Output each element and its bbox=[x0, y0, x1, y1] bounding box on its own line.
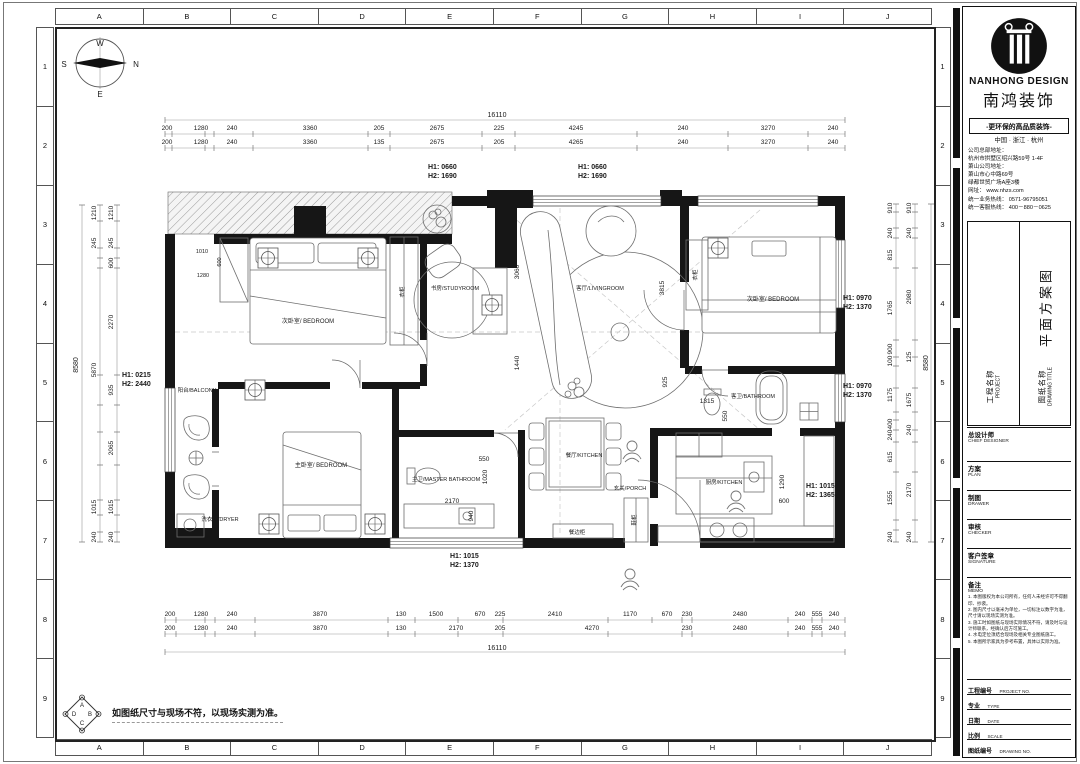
room-label: 阳台/BALCONY bbox=[178, 386, 217, 394]
dim-label: 16110 bbox=[488, 112, 507, 119]
note-text: 如图纸尺寸与现场不符，以现场实测为准。 bbox=[112, 706, 283, 723]
dim-label: 555 bbox=[812, 625, 823, 632]
dim-label: 2170 bbox=[445, 498, 460, 505]
window-height-label: H2: 1370 bbox=[450, 562, 479, 569]
dim-label: 240 bbox=[91, 531, 98, 542]
person-figure bbox=[623, 441, 641, 462]
project-drawing-box: 工程名称 PROJECT 平面方案图 图纸名称 DRAWING TITLE bbox=[967, 221, 1071, 426]
dim-label: 550 bbox=[479, 456, 490, 463]
abcd-diamond-logo: A B C D bbox=[62, 694, 102, 734]
dim-label: 2065 bbox=[108, 440, 115, 455]
dim-label: 2675 bbox=[430, 139, 445, 146]
dim-label: 240 bbox=[887, 429, 894, 440]
dim-label: 100 bbox=[887, 355, 894, 366]
column-logo-icon bbox=[988, 14, 1050, 76]
drawing-title-label-en: DRAWING TITLE bbox=[1047, 367, 1053, 406]
room-label: 客卫/BATHROOM bbox=[731, 392, 775, 400]
dim-label: 910 bbox=[906, 202, 913, 213]
chief-label-en: CHIEF DESIGNER bbox=[968, 439, 1070, 444]
memo-item: 2. 图内尺寸以毫米为单位，一切标注以数字为准，尺寸请以现场实测为准。 bbox=[968, 607, 1070, 620]
dim-label: 200 bbox=[162, 125, 173, 132]
dim-label: 225 bbox=[495, 611, 506, 618]
dim-label: 240 bbox=[887, 227, 894, 238]
dim-label: 2170 bbox=[906, 482, 913, 497]
dim-label: 200 bbox=[162, 139, 173, 146]
dim-label: 670 bbox=[662, 611, 673, 618]
window-height-label: H1: 1015 bbox=[806, 483, 835, 490]
address-line: 绿都世贸广场A座3楼 bbox=[968, 179, 1070, 187]
company-logo: NANHONG DESIGN 南鸿装饰 bbox=[967, 10, 1071, 116]
dim-label: 240 bbox=[829, 625, 840, 632]
dim-label: 555 bbox=[812, 611, 823, 618]
dim-label: 240 bbox=[906, 227, 913, 238]
cabinet-label: 鞋柜 bbox=[630, 514, 638, 526]
dim-label: 1500 bbox=[429, 611, 444, 618]
dim-label: 2270 bbox=[108, 314, 115, 329]
window-height-label: H2: 1370 bbox=[843, 392, 872, 399]
room-label: 厨房/KITCHEN bbox=[706, 478, 743, 486]
dim-label: 940 bbox=[468, 510, 475, 521]
room-label: 次卧室/ BEDROOM bbox=[282, 317, 334, 325]
dim-label: 1280 bbox=[194, 625, 209, 632]
dim-label: 130 bbox=[396, 611, 407, 618]
dim-label: 240 bbox=[828, 139, 839, 146]
dim-label: 4270 bbox=[585, 625, 600, 632]
brand-region: 中国 · 浙江 · 杭州 bbox=[967, 135, 1071, 145]
dim-label: 240 bbox=[227, 611, 238, 618]
cabinet-label: 餐边柜 bbox=[569, 528, 586, 536]
dim-label: 240 bbox=[828, 125, 839, 132]
room-label: 餐厅/KITCHEN bbox=[566, 451, 603, 459]
dim-label: 240 bbox=[678, 125, 689, 132]
dim-label: 240 bbox=[795, 625, 806, 632]
titleblock-footer-row: 工程编号 PROJECT NO. bbox=[967, 679, 1071, 694]
project-label: 工程名称 bbox=[985, 369, 996, 403]
cabinet-label: 衣柜 bbox=[398, 286, 406, 298]
dim-label: 600 bbox=[108, 257, 115, 268]
svg-text:B: B bbox=[88, 712, 92, 718]
titleblock-rows: 方案 PLAN 制图 DRAWER 审核 CHECKER 客户签章 SIGNAT… bbox=[967, 461, 1071, 577]
dim-label: 240 bbox=[887, 531, 894, 542]
dim-label: 935 bbox=[108, 384, 115, 395]
dim-label: 225 bbox=[494, 125, 505, 132]
dim-label: 240 bbox=[795, 611, 806, 618]
dim-label: 240 bbox=[829, 611, 840, 618]
dim-label: 130 bbox=[396, 625, 407, 632]
window-height-label: H1: 0970 bbox=[843, 383, 872, 390]
dim-label: 3270 bbox=[761, 139, 776, 146]
room-label: 玄关/PORCH bbox=[614, 484, 646, 492]
dim-label: 5870 bbox=[91, 362, 98, 377]
memo-item: 1. 本图版权为本公司所有，任何人未经许可不得翻印、抄袭。 bbox=[968, 594, 1070, 607]
dim-label: 135 bbox=[374, 139, 385, 146]
window-height-label: H2: 1370 bbox=[843, 304, 872, 311]
dim-label: N bbox=[133, 60, 139, 69]
dim-label: 2410 bbox=[548, 611, 563, 618]
dim-label: 205 bbox=[495, 625, 506, 632]
dim-label: 550 bbox=[722, 410, 729, 421]
dim-label: 2170 bbox=[449, 625, 464, 632]
dim-label: 1010 bbox=[196, 249, 208, 255]
dim-label: 230 bbox=[682, 625, 693, 632]
dim-label: 240 bbox=[678, 139, 689, 146]
brand-name-en: NANHONG DESIGN bbox=[969, 76, 1069, 87]
window-height-label: H1: 1015 bbox=[450, 553, 479, 560]
armchair bbox=[586, 206, 636, 256]
brand-slogan: -更环保的高品质装饰- bbox=[969, 118, 1069, 134]
dim-label: 1015 bbox=[108, 499, 115, 514]
address-line: 萧山市心中路69号 bbox=[968, 171, 1070, 179]
sink bbox=[744, 462, 764, 492]
dim-label: 3870 bbox=[313, 625, 328, 632]
dim-label: 16110 bbox=[488, 645, 507, 652]
desk-chair bbox=[422, 241, 465, 282]
dim-label: 3870 bbox=[313, 611, 328, 618]
dim-label: 1440 bbox=[514, 355, 521, 370]
project-label-en: PROJECT bbox=[996, 369, 1002, 403]
dim-label: 245 bbox=[91, 237, 98, 248]
dim-label: 400 bbox=[887, 418, 894, 429]
dim-label: 3360 bbox=[303, 125, 318, 132]
dim-label: 925 bbox=[662, 376, 669, 387]
titleblock-footer-row: 比例 SCALE bbox=[967, 724, 1071, 739]
drawing-title: 平面方案图 bbox=[1035, 267, 1054, 347]
address-line: 统一客服热线： 400－880－0625 bbox=[968, 204, 1070, 212]
titleblock-footer-rows: 工程编号 PROJECT NO. 专业 TYPE 日期 DATE 比例 SCAL… bbox=[967, 679, 1071, 754]
cabinet-label: 衣柜 bbox=[691, 269, 699, 281]
titleblock-footer-row: 图纸编号 DRAWING NO. bbox=[967, 739, 1071, 754]
dim-label: 240 bbox=[906, 424, 913, 435]
dim-label: 230 bbox=[682, 611, 693, 618]
memo-item: 3. 施工时如图纸与现场实际情况不符，请及时与设计师联系，经确认后方可施工。 bbox=[968, 620, 1070, 633]
svg-text:D: D bbox=[72, 712, 77, 718]
company-address: 公司总部地址：杭州市拱墅区绍兴路59号 1-4F萧山公司地址：萧山市心中路69号… bbox=[967, 145, 1071, 220]
dim-label: 1675 bbox=[906, 392, 913, 407]
project-name-cell: 工程名称 PROJECT bbox=[968, 222, 1020, 425]
dim-label: 2480 bbox=[733, 625, 748, 632]
dim-label: 600 bbox=[779, 498, 790, 505]
dim-label: 1555 bbox=[887, 490, 894, 505]
room-label: 主卧室/ BEDROOM bbox=[295, 461, 347, 469]
titleblock-row: 审核 CHECKER bbox=[967, 519, 1071, 548]
dim-label: 910 bbox=[887, 202, 894, 213]
address-line: 统一业务热线： 0571-96795051 bbox=[968, 196, 1070, 204]
dim-label: 3815 bbox=[659, 280, 666, 295]
dim-label: 205 bbox=[374, 125, 385, 132]
dim-label: 3270 bbox=[761, 125, 776, 132]
dim-label: 2675 bbox=[430, 125, 445, 132]
titleblock-row: 客户签章 SIGNATURE bbox=[967, 548, 1071, 577]
dim-label: 900 bbox=[887, 343, 894, 354]
dim-label: 1210 bbox=[108, 205, 115, 220]
dim-label: 200 bbox=[165, 611, 176, 618]
dim-label: 1175 bbox=[887, 388, 894, 402]
bed bbox=[283, 432, 361, 538]
dim-label: 1020 bbox=[482, 469, 489, 484]
dim-label: 1290 bbox=[779, 474, 786, 489]
drawing-title-cell: 平面方案图 图纸名称 DRAWING TITLE bbox=[1020, 222, 1071, 425]
svg-text:A: A bbox=[80, 703, 84, 709]
memo-item: 5. 本图所示家具为参考布置，具体以实际为准。 bbox=[968, 639, 1070, 645]
dim-label: S bbox=[61, 60, 66, 69]
plan-labels: WSNE161102001280240336020526752254245240… bbox=[61, 39, 930, 652]
dim-label: 125 bbox=[906, 351, 913, 362]
sofa bbox=[517, 208, 596, 402]
room-label: 书房/STUDYROOM bbox=[431, 284, 480, 292]
titleblock-row: 制图 DRAWER bbox=[967, 490, 1071, 519]
vanity bbox=[404, 504, 494, 528]
address-line: 萧山公司地址： bbox=[968, 163, 1070, 171]
dim-label: 240 bbox=[227, 139, 238, 146]
memo-item: 4. 水电定位须结合现场及相关专业图纸施工。 bbox=[968, 632, 1070, 638]
dim-label: 240 bbox=[108, 531, 115, 542]
site-note: A B C D 如图纸尺寸与现场不符，以现场实测为准。 bbox=[62, 694, 283, 734]
dim-label: 1280 bbox=[194, 125, 209, 132]
dim-label: 600 bbox=[217, 257, 223, 266]
dim-label: 200 bbox=[165, 625, 176, 632]
titleblock-footer-row: 专业 TYPE bbox=[967, 694, 1071, 709]
dim-label: 615 bbox=[887, 451, 894, 462]
titleblock-row: 方案 PLAN bbox=[967, 461, 1071, 490]
room-label: 次卧室/ BEDROOM bbox=[747, 295, 799, 303]
window-height-label: H2: 1690 bbox=[428, 173, 457, 180]
dim-label: 1280 bbox=[194, 611, 209, 618]
dim-label: 1765 bbox=[887, 300, 894, 315]
dim-label: 240 bbox=[227, 625, 238, 632]
dim-label: 4245 bbox=[569, 125, 584, 132]
dim-label: 1280 bbox=[194, 139, 209, 146]
drawing-sheet: ABCDEFGHIJ ABCDEFGHIJ 123456789 12345678… bbox=[0, 0, 1080, 764]
dim-label: E bbox=[97, 90, 102, 99]
svg-text:C: C bbox=[80, 721, 85, 727]
dim-label: 3060 bbox=[514, 264, 521, 279]
titleblock-footer-row: 日期 DATE bbox=[967, 709, 1071, 724]
dim-label: 4265 bbox=[569, 139, 584, 146]
dim-label: 1170 bbox=[623, 611, 637, 618]
dim-label: 240 bbox=[227, 125, 238, 132]
window-height-label: H1: 0215 bbox=[122, 372, 151, 379]
dim-label: 245 bbox=[108, 237, 115, 248]
memo-label: 备注 bbox=[968, 579, 1070, 589]
counter bbox=[804, 436, 834, 526]
brand-name-cn: 南鸿装饰 bbox=[983, 87, 1055, 111]
dim-label: 1015 bbox=[91, 499, 98, 514]
window-height-label: H1: 0660 bbox=[428, 164, 457, 171]
dim-label: 205 bbox=[494, 139, 505, 146]
dim-label: 2980 bbox=[906, 289, 913, 304]
window-height-label: H2: 2440 bbox=[122, 381, 151, 388]
chief-label: 总设计师 bbox=[968, 429, 1070, 439]
dim-label: 1315 bbox=[700, 398, 715, 405]
dim-label: 670 bbox=[475, 611, 486, 618]
floor-plan-drawing: WSNE161102001280240336020526752254245240… bbox=[0, 0, 1080, 764]
dim-label: W bbox=[96, 39, 104, 48]
dim-label: 3360 bbox=[303, 139, 318, 146]
dim-label: 240 bbox=[906, 531, 913, 542]
person-figure bbox=[727, 491, 745, 512]
dim-label: 2480 bbox=[733, 611, 748, 618]
dim-label: 1280 bbox=[197, 273, 209, 279]
appliance-label: 洗衣机/DRYER bbox=[201, 515, 238, 523]
window-height-label: H2: 1365 bbox=[806, 492, 835, 499]
window-height-label: H2: 1690 bbox=[578, 173, 607, 180]
person-figure bbox=[621, 569, 639, 590]
address-line: 网址： www.nhzs.com bbox=[968, 187, 1070, 195]
dim-label: 8580 bbox=[73, 357, 80, 373]
address-line: 公司总部地址： bbox=[968, 147, 1070, 155]
room-label: 客厅/LIVINGROOM bbox=[576, 284, 624, 292]
memo-section: 备注 MEMO 1. 本图版权为本公司所有，任何人未经许可不得翻印、抄袭。2. … bbox=[967, 577, 1071, 679]
drawing-title-label: 图纸名称 bbox=[1036, 367, 1047, 406]
dim-label: 815 bbox=[887, 249, 894, 260]
room-label: 主卫/MASTER BATHROOM bbox=[412, 475, 481, 483]
chief-designer-row: 总设计师 CHIEF DESIGNER bbox=[967, 427, 1071, 462]
window-height-label: H1: 0660 bbox=[578, 164, 607, 171]
window-height-label: H1: 0970 bbox=[843, 295, 872, 302]
dim-label: 1210 bbox=[91, 205, 98, 220]
address-line: 杭州市拱墅区绍兴路59号 1-4F bbox=[968, 155, 1070, 163]
dim-label: 8580 bbox=[923, 355, 930, 371]
title-block: NANHONG DESIGN 南鸿装饰 -更环保的高品质装饰- 中国 · 浙江 … bbox=[962, 6, 1076, 758]
